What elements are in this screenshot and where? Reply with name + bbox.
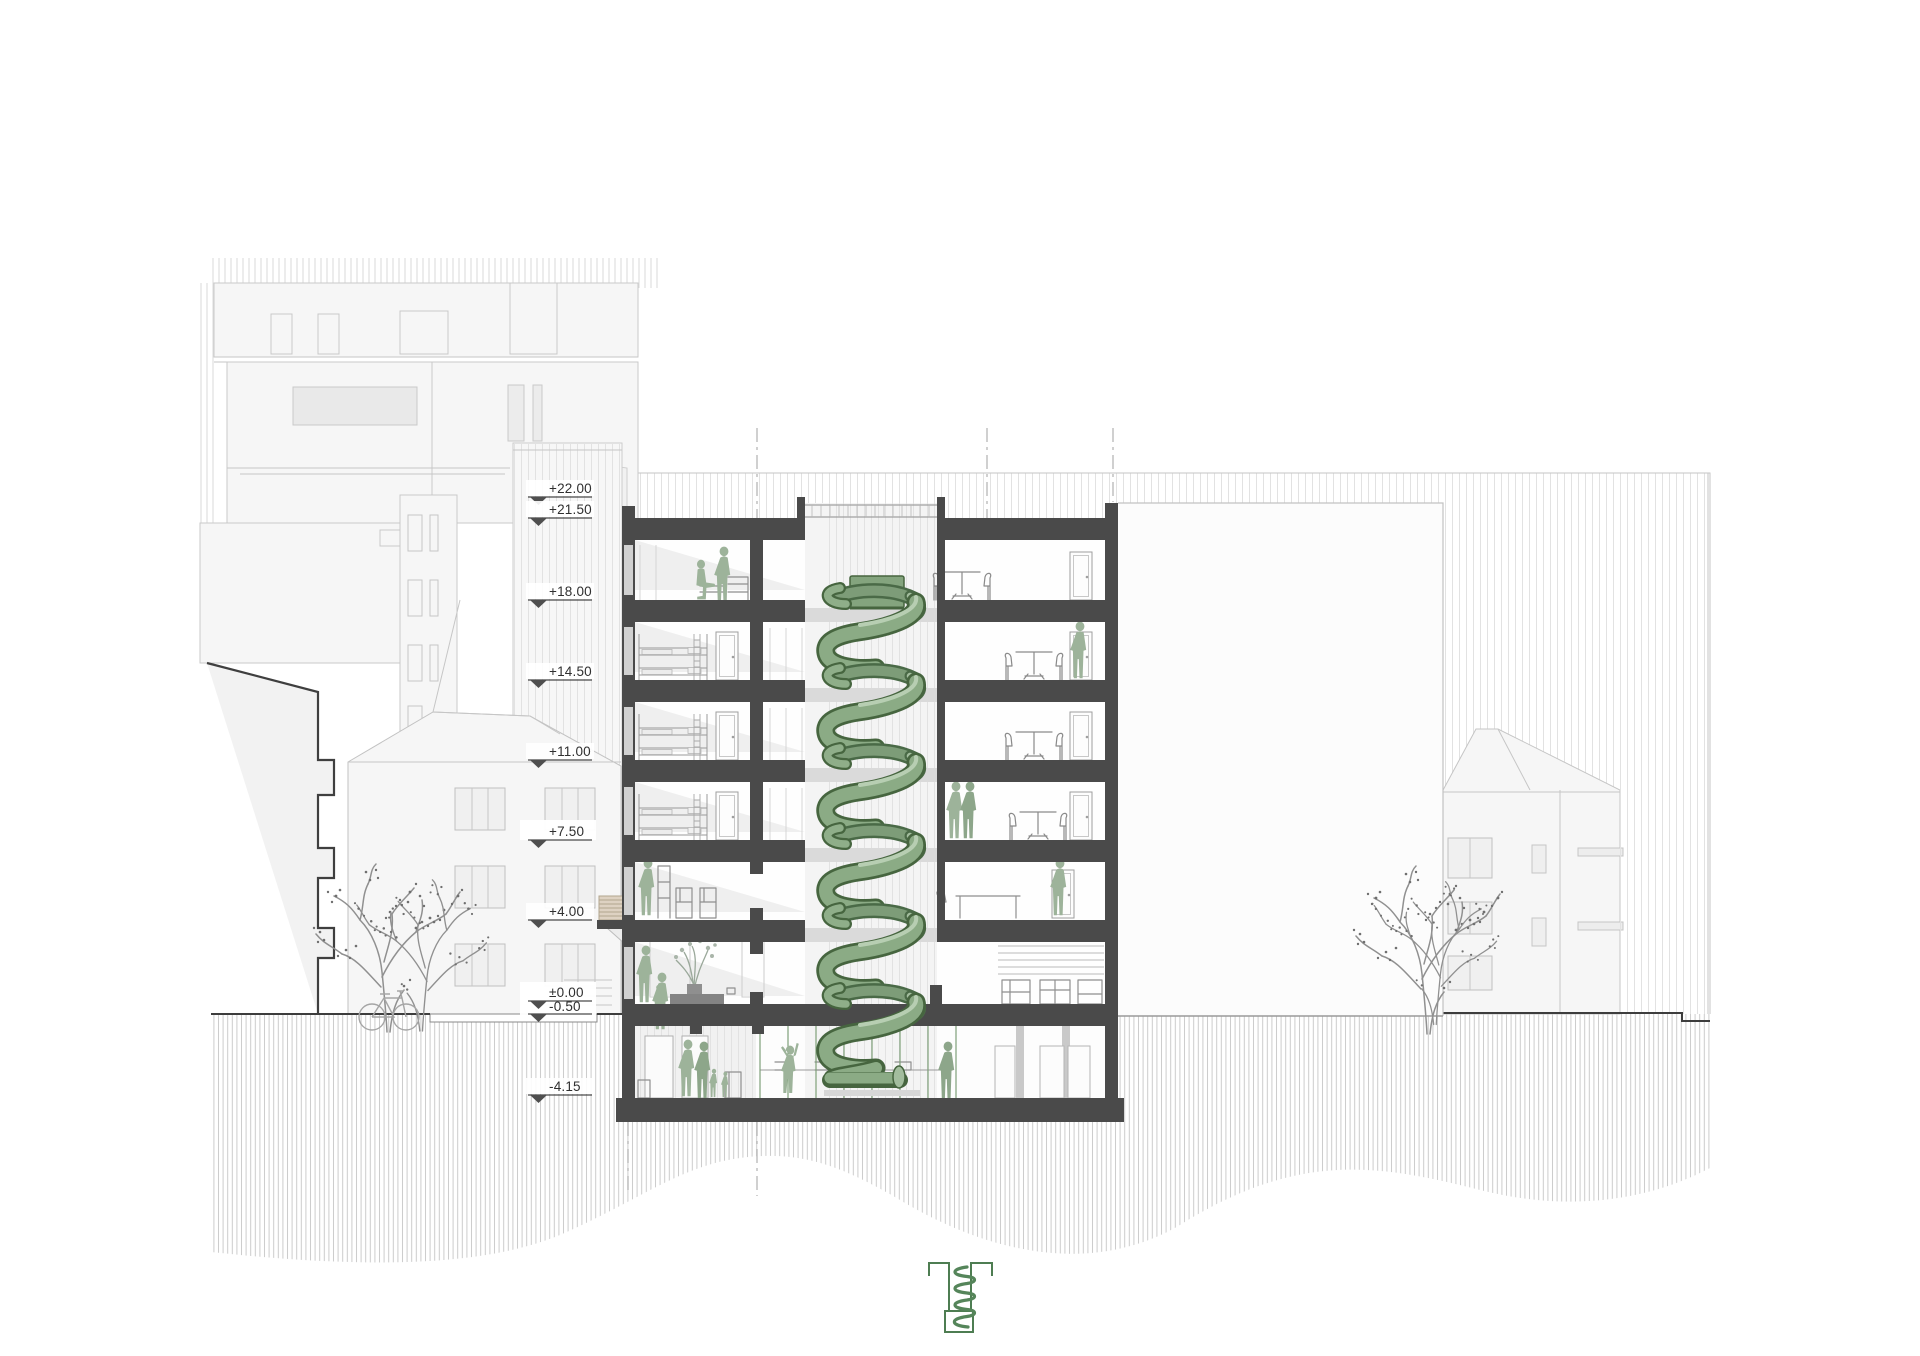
level-label: +18.00 bbox=[549, 584, 592, 599]
room-door bbox=[1070, 712, 1092, 760]
level-label: -0.50 bbox=[549, 999, 581, 1014]
foundation-slab bbox=[616, 1098, 1124, 1122]
foreground-building bbox=[1118, 503, 1443, 1016]
level-label: +22.00 bbox=[549, 481, 592, 496]
level-label: ±0.00 bbox=[549, 985, 584, 1000]
level-label: +14.50 bbox=[549, 664, 592, 679]
level-label: +7.50 bbox=[549, 824, 584, 839]
room-door bbox=[716, 792, 738, 840]
level-label: +21.50 bbox=[549, 502, 592, 517]
section-drawing-canvas: +22.00 +21.50 +18.00 +14.50 +11.00 bbox=[0, 0, 1920, 1356]
room-door bbox=[716, 632, 738, 680]
spiral-slide-section-logo-icon bbox=[929, 1263, 992, 1332]
level-label: +11.00 bbox=[549, 744, 591, 759]
room-door bbox=[1070, 792, 1092, 840]
sideboard bbox=[670, 994, 724, 1004]
section-building bbox=[597, 497, 1124, 1122]
section-drawing: +22.00 +21.50 +18.00 +14.50 +11.00 bbox=[0, 0, 1920, 1356]
level-label: +4.00 bbox=[549, 904, 584, 919]
level-label: -4.15 bbox=[549, 1079, 581, 1094]
room-door bbox=[716, 712, 738, 760]
right-wall bbox=[1105, 503, 1118, 1122]
room-door bbox=[1070, 552, 1092, 600]
